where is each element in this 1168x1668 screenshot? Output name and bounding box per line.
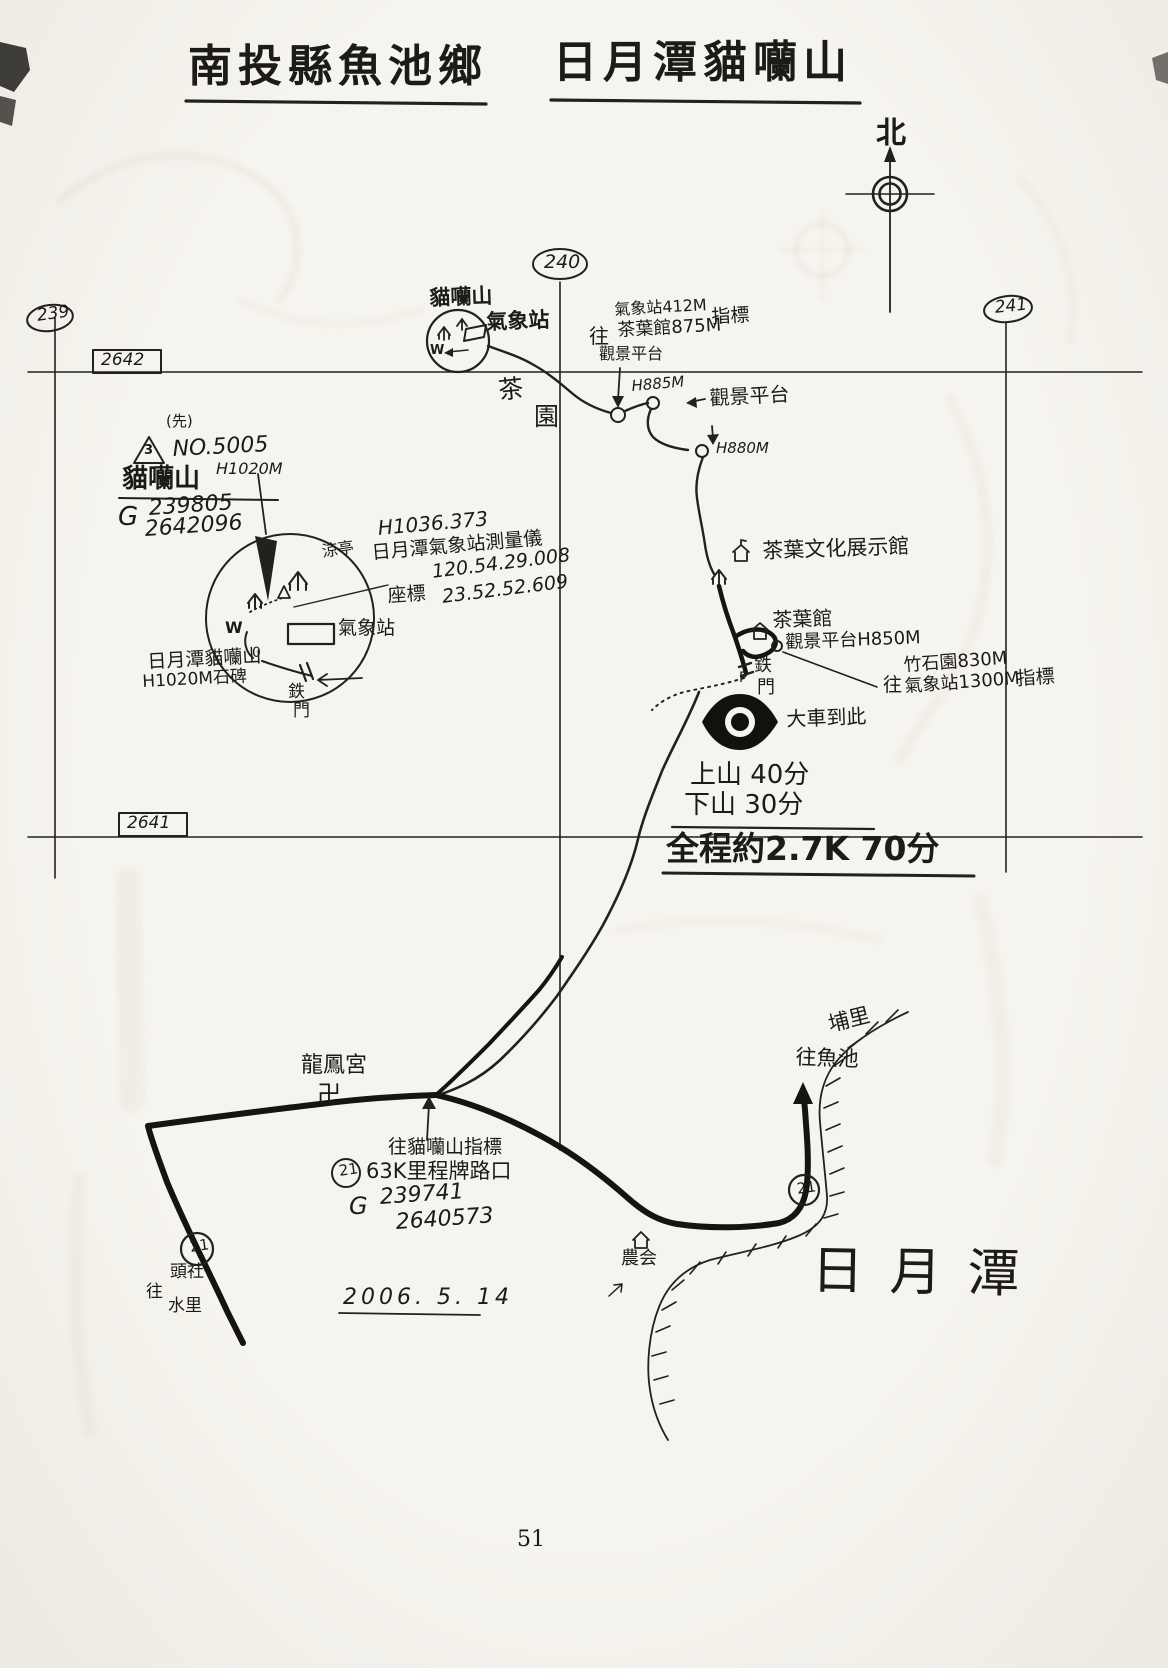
time-up: 上山 40分 (690, 762, 809, 789)
survey-coord-label: 座標 (387, 584, 426, 607)
summit-point-no: NO.5005 (172, 433, 269, 461)
junction-note2: 63K里程牌路口 (366, 1160, 512, 1182)
gate-p-mark: P (739, 671, 747, 686)
grid-lines (25, 249, 1142, 1150)
station-west-mark: W (430, 344, 444, 358)
shore-hatching (652, 1010, 898, 1404)
summit-gps-g: G (118, 504, 138, 531)
route-21-west-label: 21 (189, 1237, 210, 1255)
car-limit-note: 大車到此 (786, 706, 867, 730)
ghost-bleedthrough (60, 155, 1073, 1430)
page-number: 51 (517, 1528, 545, 1551)
farmers-house-icon (633, 1232, 649, 1248)
road-west (148, 1095, 436, 1126)
descent-trail (436, 692, 699, 1096)
exhibit-hall-label: 茶葉文化展示館 (762, 535, 910, 562)
inset-west-mark: W (225, 620, 243, 637)
title-underlines (186, 100, 860, 104)
gate-char1: 鉄 (754, 657, 772, 676)
junction-gps-coord1: 239741 (379, 1180, 464, 1209)
junction-badge-21: 21 (338, 1161, 359, 1179)
tea-house-label: 茶葉館 (772, 608, 833, 631)
time-total: 全程約2.7K 70分 (666, 832, 939, 867)
station-name-line1: 貓囒山 (429, 285, 493, 309)
station-name-line2: 氣象站 (486, 309, 550, 333)
summit-triangle-num: 3 (144, 444, 153, 458)
junction-note1: 往貓囒山指標 (388, 1138, 502, 1158)
survey-date: 2006. 5. 14 (343, 1286, 513, 1309)
weather-station-symbol (427, 310, 489, 372)
north-compass-icon (846, 146, 934, 312)
pavilion-icon (248, 572, 307, 608)
road-trailhead-branch (436, 957, 562, 1095)
summit-class-note: (先) (166, 414, 193, 430)
page-title-region: 南投縣魚池鄉 (188, 44, 488, 90)
spot-h880: H880M (716, 441, 769, 457)
spot-view-platform: 觀景平台 (709, 384, 790, 409)
scanned-map-page: 南投縣魚池鄉 日月潭貓囒山 北 239 240 241 2642 2641 貓囒… (0, 0, 1168, 1668)
grid-box-2641: 2641 (127, 815, 170, 833)
temple-label: 龍鳳宮 (301, 1054, 367, 1077)
dest-tousha-pre: 往 (146, 1284, 163, 1302)
time-down: 下山 30分 (684, 792, 803, 819)
summit-name: 貓囒山 (122, 466, 200, 493)
tea-garden-char2: 園 (534, 404, 559, 430)
gate-char2: 門 (757, 679, 775, 698)
inset-station-label: 氣象站 (338, 619, 395, 639)
grid-oval-240: 240 (544, 253, 580, 273)
inset-gate-char2: 門 (293, 703, 310, 721)
summit-elev: H1020M (216, 461, 283, 478)
shore-arrow (609, 1284, 622, 1296)
signpost-line3: 觀景平台 (599, 346, 663, 363)
page-title-mountain: 日月潭貓囒山 (553, 40, 853, 86)
north-label: 北 (876, 118, 906, 150)
signpost-suffix: 指標 (711, 306, 750, 328)
tea-garden-char1: 茶 (497, 375, 525, 404)
dest-tousha-2: 水里 (168, 1298, 202, 1316)
map-drawing (0, 0, 1168, 1668)
farmers-assoc-label: 農会 (621, 1250, 657, 1269)
iron-gate-icon (300, 663, 313, 681)
lake-name: 日月潭 (811, 1244, 1046, 1303)
garden-signpost-suffix: 指標 (1016, 667, 1055, 690)
garden-signpost-to: 往 (883, 676, 902, 696)
pavilion-icon (438, 319, 467, 340)
date-underline (339, 1313, 480, 1315)
house-icon (733, 540, 749, 561)
temple-swastika-icon: 卍 (317, 1082, 341, 1107)
grid-oval-241: 241 (994, 297, 1028, 318)
dest-yuchi: 往魚池 (795, 1046, 859, 1070)
eye-viewpoint-icon (702, 694, 778, 750)
junction-gps-g: G (349, 1194, 368, 1219)
route-21-east-label: 21 (796, 1179, 817, 1197)
dest-tousha-1: 頭社 (170, 1264, 204, 1282)
inset-gate-char1: 鉄 (288, 684, 305, 702)
grid-box-2642: 2642 (101, 352, 144, 370)
